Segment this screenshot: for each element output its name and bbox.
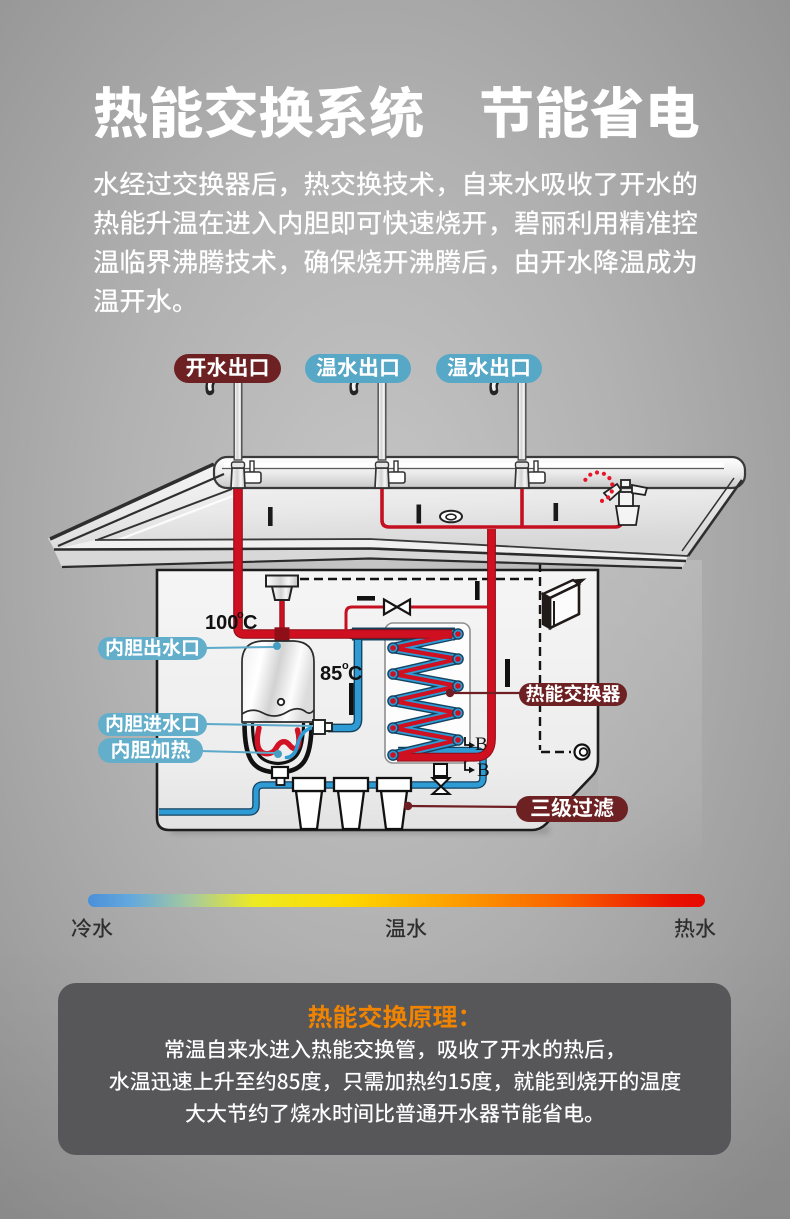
svg-text:B: B: [477, 760, 490, 781]
svg-text:85: 85: [320, 663, 342, 685]
svg-text:C: C: [348, 663, 362, 685]
svg-text:C: C: [243, 612, 257, 634]
svg-text:100: 100: [205, 612, 238, 634]
